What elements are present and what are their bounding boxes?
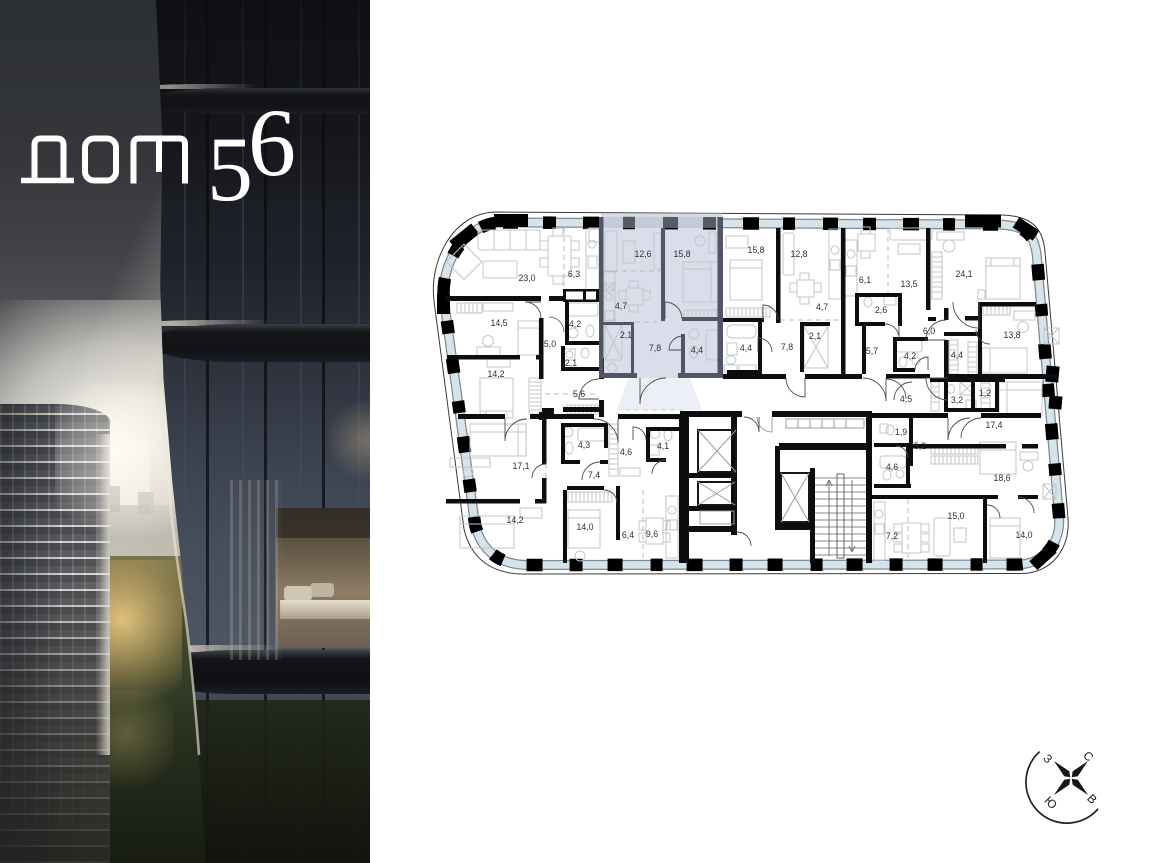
- svg-text:7,2: 7,2: [886, 531, 898, 541]
- svg-text:14,5: 14,5: [490, 318, 507, 328]
- svg-text:З: З: [1040, 751, 1055, 766]
- svg-text:4,4: 4,4: [691, 345, 703, 355]
- svg-text:1,2: 1,2: [979, 388, 991, 398]
- svg-text:14,2: 14,2: [487, 369, 504, 379]
- svg-text:2,1: 2,1: [565, 358, 577, 368]
- svg-text:2,1: 2,1: [620, 330, 632, 340]
- svg-text:24,1: 24,1: [955, 269, 972, 279]
- svg-text:4,6: 4,6: [886, 462, 898, 472]
- svg-text:4,6: 4,6: [620, 447, 632, 457]
- svg-text:12,8: 12,8: [790, 249, 807, 259]
- svg-text:17,4: 17,4: [985, 420, 1002, 430]
- svg-text:17,1: 17,1: [512, 461, 529, 471]
- svg-text:3,2: 3,2: [951, 395, 963, 405]
- svg-text:15,0: 15,0: [947, 511, 964, 521]
- svg-text:2,6: 2,6: [875, 305, 887, 315]
- svg-text:5,0: 5,0: [544, 339, 556, 349]
- svg-text:9,6: 9,6: [646, 529, 658, 539]
- svg-text:5,6: 5,6: [573, 389, 585, 399]
- svg-text:6,0: 6,0: [923, 326, 935, 336]
- svg-text:6,3: 6,3: [568, 269, 580, 279]
- svg-text:4,7: 4,7: [816, 302, 828, 312]
- svg-text:5,2: 5,2: [914, 441, 926, 451]
- svg-text:23,0: 23,0: [518, 273, 535, 283]
- svg-text:4,4: 4,4: [740, 343, 752, 353]
- svg-text:4,2: 4,2: [569, 319, 581, 329]
- svg-text:18,6: 18,6: [993, 473, 1010, 483]
- svg-text:14,0: 14,0: [1015, 530, 1032, 540]
- svg-text:4,4: 4,4: [951, 350, 963, 360]
- svg-text:13,8: 13,8: [1003, 330, 1020, 340]
- svg-text:7,8: 7,8: [781, 342, 793, 352]
- svg-text:6,4: 6,4: [622, 530, 634, 540]
- svg-text:4,5: 4,5: [900, 394, 912, 404]
- svg-text:4,2: 4,2: [904, 351, 916, 361]
- svg-text:15,8: 15,8: [673, 249, 690, 259]
- svg-text:7,8: 7,8: [649, 343, 661, 353]
- svg-text:15,8: 15,8: [747, 245, 764, 255]
- svg-text:7,4: 7,4: [588, 470, 600, 480]
- svg-text:2,1: 2,1: [809, 331, 821, 341]
- svg-text:Ю: Ю: [1042, 794, 1060, 812]
- svg-text:6,1: 6,1: [859, 275, 871, 285]
- svg-text:12,6: 12,6: [634, 249, 651, 259]
- svg-text:5,7: 5,7: [866, 346, 878, 356]
- svg-text:13,5: 13,5: [900, 279, 917, 289]
- svg-text:14,2: 14,2: [506, 515, 523, 525]
- svg-text:4,1: 4,1: [657, 441, 669, 451]
- svg-text:4,3: 4,3: [578, 440, 590, 450]
- svg-text:4,7: 4,7: [615, 301, 627, 311]
- svg-text:14,0: 14,0: [576, 522, 593, 532]
- svg-text:1,9: 1,9: [895, 427, 907, 437]
- svg-text:С: С: [1080, 748, 1096, 764]
